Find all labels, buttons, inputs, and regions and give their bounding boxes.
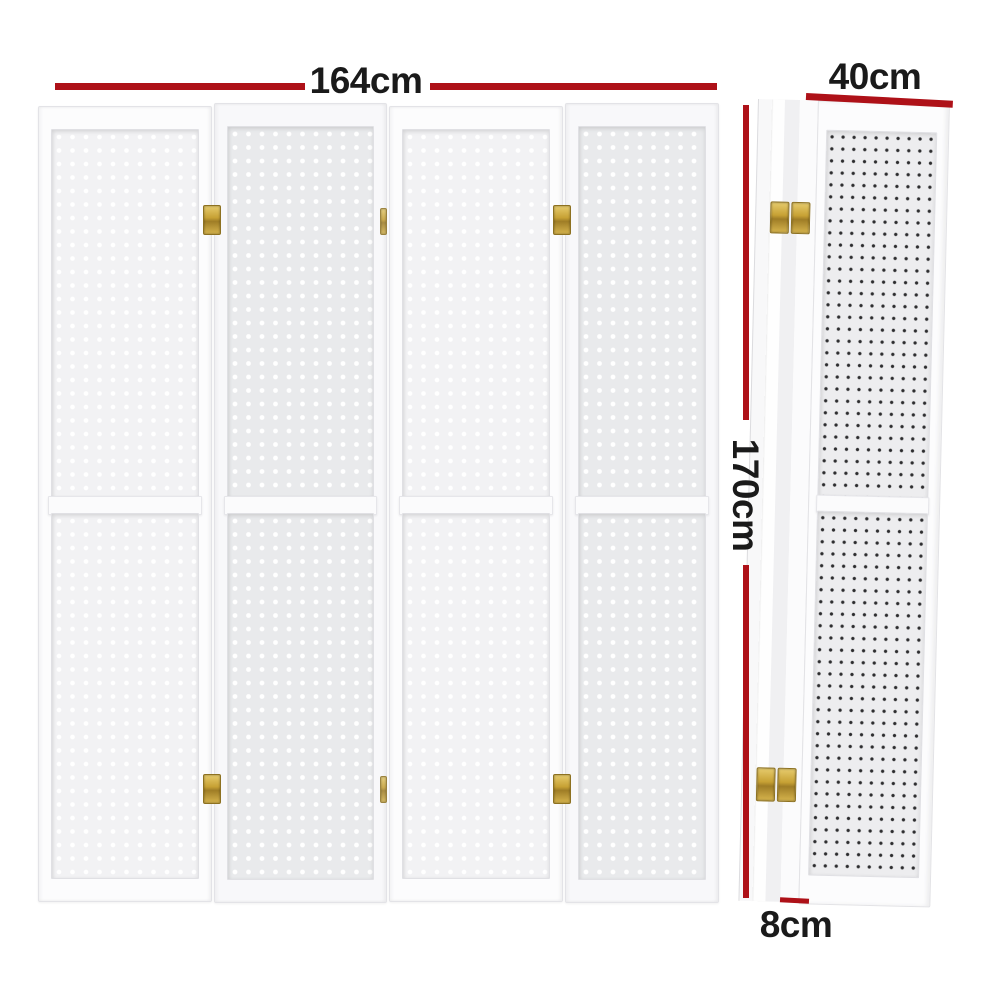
- height-dimension-line-top: [743, 105, 749, 420]
- hinge-icon: [756, 767, 776, 801]
- pegboard-upper: [227, 126, 374, 498]
- height-dimension-line-bottom: [743, 565, 749, 898]
- pegboard-upper: [817, 130, 937, 500]
- pegboard-upper: [51, 129, 199, 498]
- height-dimension-label: 170cm: [727, 425, 765, 565]
- divider-panel-4: [565, 103, 719, 903]
- pegboard-lower: [578, 513, 706, 880]
- hinge-icon: [380, 776, 387, 803]
- divider-panel-2: [214, 103, 387, 903]
- pegboard-upper: [578, 126, 706, 498]
- pegboard-lower: [402, 513, 550, 879]
- divider-panel-1: [38, 106, 212, 902]
- divider-panel-3: [389, 106, 563, 902]
- hinge-icon: [791, 202, 811, 234]
- hinge-icon: [553, 205, 571, 235]
- hinge-icon: [777, 768, 797, 802]
- hinge-icon: [203, 205, 221, 235]
- side-view: [738, 99, 950, 905]
- hinge-icon: [770, 201, 790, 233]
- hinge-icon: [553, 774, 571, 804]
- width-dimension-line-right: [430, 83, 717, 90]
- pegboard-upper: [402, 129, 550, 498]
- hinge-icon: [203, 774, 221, 804]
- width-dimension-line-left: [55, 83, 305, 90]
- thickness-dimension-label: 8cm: [754, 906, 838, 943]
- thickness-dimension-line: [780, 897, 809, 904]
- hinge-icon: [380, 208, 387, 235]
- side-panel: [798, 100, 950, 907]
- pegboard-lower: [808, 511, 928, 879]
- product-dimension-diagram: 164cm 170cm 40cm 8cm: [0, 0, 1000, 1000]
- width-dimension-label: 164cm: [300, 62, 432, 99]
- pegboard-lower: [51, 513, 199, 879]
- pegboard-lower: [227, 513, 374, 880]
- depth-dimension-label: 40cm: [815, 58, 935, 95]
